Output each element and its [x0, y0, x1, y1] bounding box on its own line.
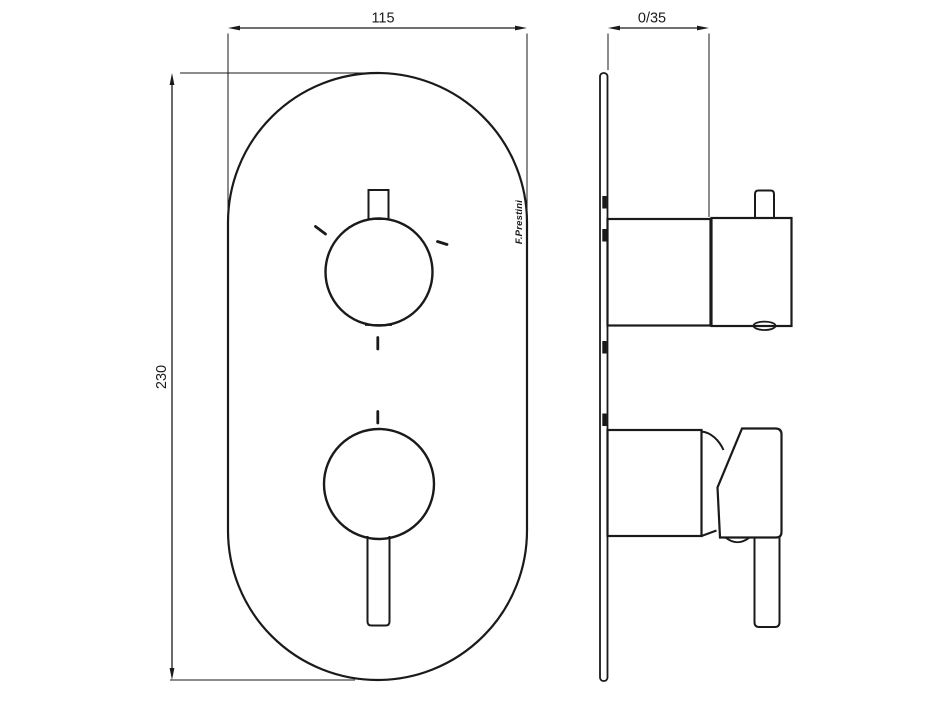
dim-depth-label: 0/35 — [638, 11, 666, 27]
lower-body-taper-bottom — [702, 531, 717, 537]
upper-knob-circle — [326, 219, 433, 326]
plate-clip-1 — [602, 196, 607, 209]
arrowhead-right-icon — [515, 26, 527, 31]
lower-knob-front — [324, 412, 434, 626]
faceplate-outline — [228, 73, 527, 680]
plate-clip-2 — [602, 229, 607, 242]
arrowhead-down-icon — [170, 668, 175, 680]
arrowhead-left-icon — [228, 26, 240, 31]
side-view — [600, 73, 792, 681]
index-tick-upper-left — [316, 227, 326, 235]
index-tick-upper-right — [438, 242, 448, 245]
front-view: F.Prestini — [228, 73, 527, 680]
upper-knob-tab — [369, 190, 389, 219]
lower-knob-side — [608, 429, 782, 628]
lower-body-taper-top — [702, 432, 724, 451]
mixer-valve-drawing: F.Prestini — [0, 0, 946, 709]
technical-drawing-canvas: F.Prestini — [0, 0, 946, 709]
plate-clip-4 — [602, 414, 607, 427]
lower-knob-circle — [324, 429, 434, 539]
upper-knob-side — [608, 191, 792, 330]
dim-height-label: 230 — [154, 365, 170, 389]
upper-knob-front — [316, 190, 448, 349]
faceplate-edge — [600, 73, 608, 681]
arrowhead-left-icon — [608, 26, 620, 31]
upper-knob-head-side — [712, 218, 792, 326]
lever-rod-side — [755, 538, 780, 628]
dim-width-label: 115 — [371, 11, 394, 27]
dimension-depth: 0/35 — [608, 11, 709, 218]
lower-knob-lever-rod — [368, 536, 390, 626]
upper-body-side — [608, 219, 711, 326]
brand-text: F.Prestini — [514, 200, 525, 244]
plate-clip-3 — [602, 341, 607, 354]
lower-body-side — [608, 430, 702, 536]
lever-head-side — [718, 429, 782, 538]
upper-knob-tab-side — [755, 191, 774, 219]
arrowhead-right-icon — [697, 26, 709, 31]
dimension-height: 230 — [154, 73, 390, 680]
arrowhead-up-icon — [170, 73, 175, 85]
